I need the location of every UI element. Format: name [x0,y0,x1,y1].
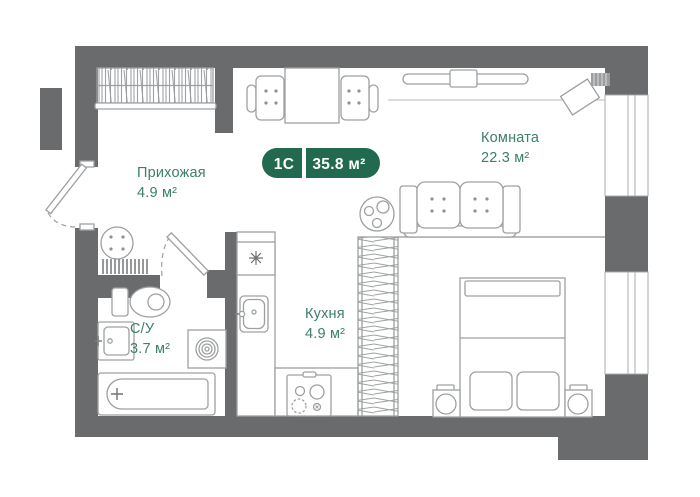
stove [287,372,331,416]
toilet [112,287,170,317]
fridge [237,242,275,275]
dining-table [285,68,339,123]
wall-right-middle [605,196,648,272]
wall-kitchen-left [225,232,237,416]
room-area: 22.3 м² [481,150,529,166]
kitchen-fixtures [235,232,358,416]
room-name: С/У [130,321,155,337]
sofa-cushion [417,182,460,228]
window-top [605,95,648,196]
shoe-rack [103,259,147,274]
washing-machine [188,330,226,368]
fridge-snowflake-icon [249,251,263,265]
entrance-door [46,161,94,230]
sofa-cushion [460,182,503,228]
kitchen-sink [235,296,268,332]
window-bay-items [403,70,610,115]
apartment-badge: 1С 35.8 м² [262,148,380,178]
bathroom-door [162,233,209,276]
room-name: Кухня [305,306,345,322]
wall-top [75,46,648,68]
bathtub [98,373,215,415]
floor-plan-page: 1С 35.8 м² Прихожая 4.9 м² Комната 22.3 … [0,0,700,497]
bathroom-door-leaf [167,233,208,275]
room-label-room: Комната 22.3 м² [481,130,540,166]
nightstand-right [565,385,592,417]
room-label-hallway: Прихожая 4.9 м² [137,165,206,201]
bed [460,278,565,417]
wall-bathroom-door-stub [207,270,225,298]
wall-bottom-right-step [558,437,648,460]
radiator-center [450,70,477,87]
dining-set [247,68,378,123]
entrance-door-leaf [46,164,86,213]
window-bottom [605,272,648,374]
room-label-bathroom: С/У 3.7 м² [130,321,170,357]
washbasin [95,322,134,360]
wall-right-bottom [605,374,648,437]
badge-area-label: 35.8 м² [312,156,365,173]
floor-plan-svg: 1С 35.8 м² Прихожая 4.9 м² Комната 22.3 … [0,0,700,497]
room-area: 4.9 м² [305,326,345,342]
room-area: 4.9 м² [137,185,177,201]
room-area: 3.7 м² [130,341,170,357]
side-table [360,197,394,231]
vent-block [591,73,610,86]
wall-stub-outside [40,88,62,150]
wall-bottom [75,416,648,437]
nightstand-left [433,385,460,417]
sofa-armrest [503,186,520,233]
bedroom-furniture [433,278,592,417]
room-name: Прихожая [137,165,206,181]
room-label-kitchen: Кухня 4.9 м² [305,306,345,342]
wardrobe-hangers [95,68,216,109]
sofa-base [404,226,516,237]
dining-chair-right [341,76,378,120]
room-name: Комната [481,130,540,146]
entrance-door-swing-arc [48,213,80,227]
wall-left-lower [75,228,98,437]
sofa [400,182,520,237]
dining-chair-left [247,76,284,120]
pouf [101,227,133,259]
badge-type-label: 1С [274,156,294,173]
sofa-armrest [400,186,417,233]
bathroom-door-swing-arc [162,238,169,276]
wall-right-top [605,46,648,95]
wall-hallway-kitchen [215,68,233,133]
wardrobe-tall [358,237,398,416]
